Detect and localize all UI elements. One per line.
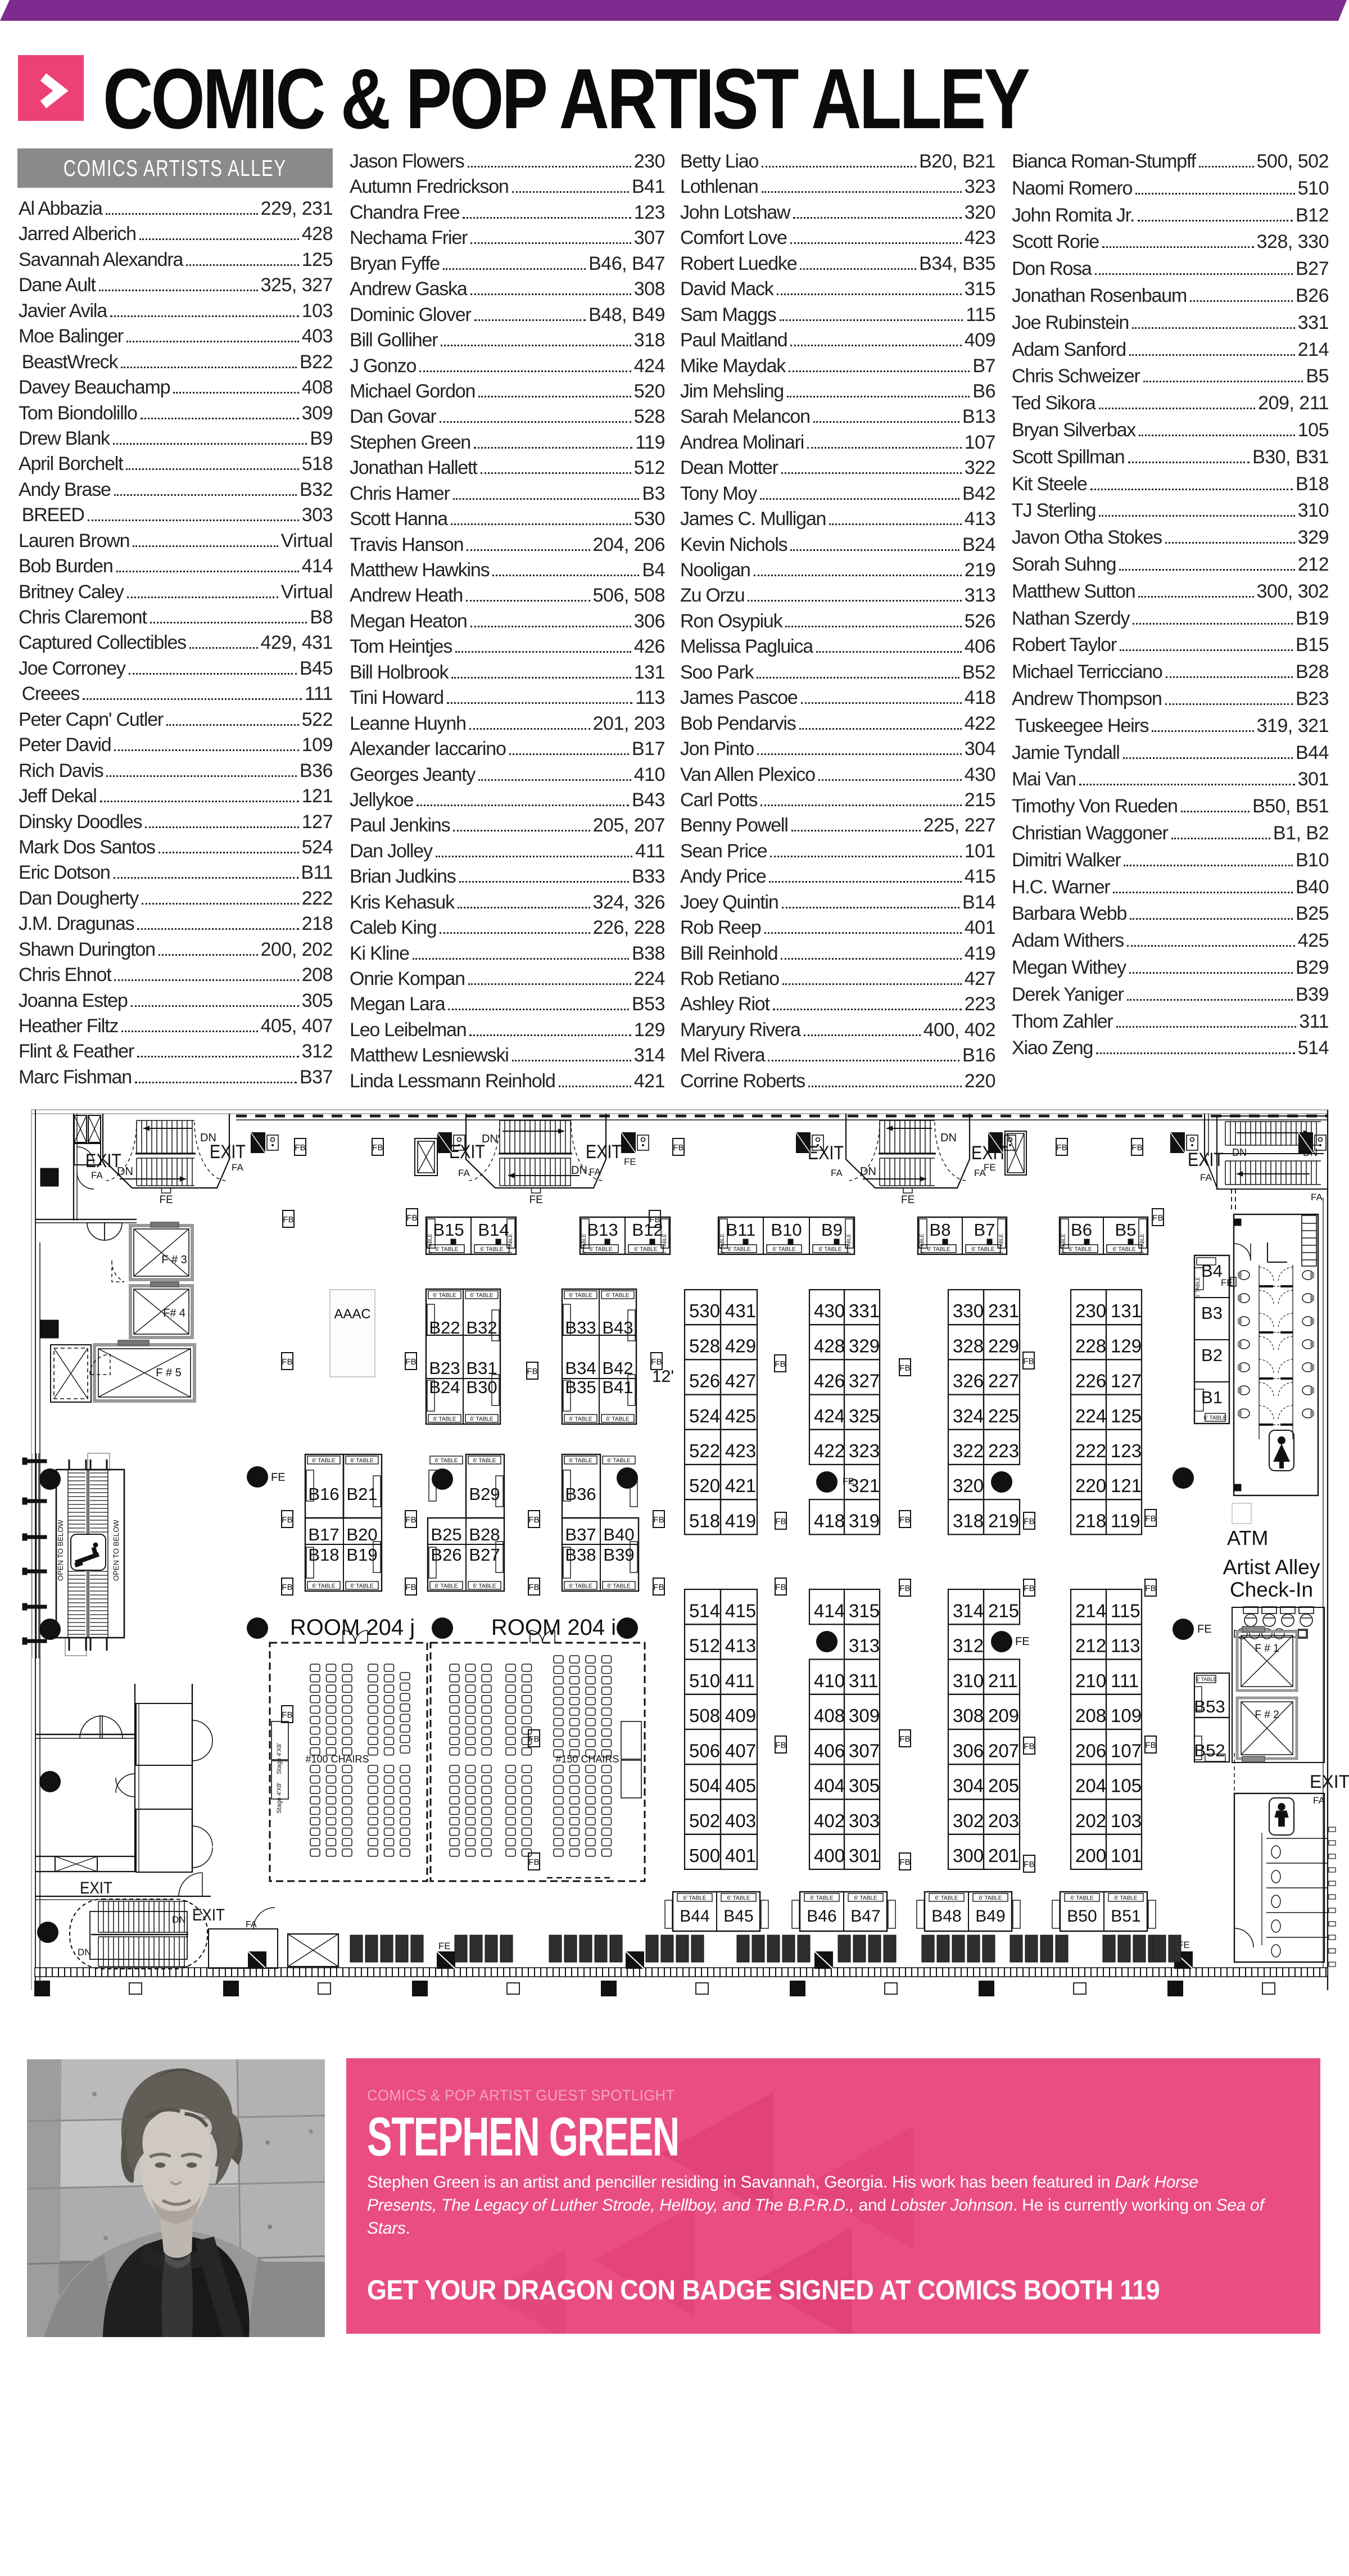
svg-text:202: 202 xyxy=(1075,1810,1106,1831)
svg-text:6' TABLE: 6' TABLE xyxy=(1070,1895,1093,1901)
svg-text:B9: B9 xyxy=(821,1220,843,1240)
svg-text:6' TABLE: 6' TABLE xyxy=(935,1895,958,1901)
svg-text:329: 329 xyxy=(849,1335,880,1356)
svg-text:FB: FB xyxy=(775,1741,786,1750)
svg-text:226: 226 xyxy=(1075,1371,1106,1391)
svg-text:F # 2: F # 2 xyxy=(1255,1709,1279,1721)
svg-text:6' TABLE: 6' TABLE xyxy=(1203,1415,1226,1421)
svg-text:425: 425 xyxy=(725,1405,756,1426)
svg-text:FA: FA xyxy=(91,1170,103,1181)
svg-text:FB: FB xyxy=(528,1734,539,1744)
svg-text:522: 522 xyxy=(689,1440,720,1461)
svg-text:125: 125 xyxy=(1111,1405,1142,1426)
svg-text:408: 408 xyxy=(814,1705,845,1726)
svg-text:6' TABLE: 6' TABLE xyxy=(634,1246,657,1253)
svg-text:B32: B32 xyxy=(466,1318,497,1337)
svg-text:OPEN TO BELOW: OPEN TO BELOW xyxy=(56,1520,65,1581)
svg-text:6' TABLE: 6' TABLE xyxy=(1139,1234,1145,1255)
svg-text:FB: FB xyxy=(283,1215,293,1224)
svg-text:319: 319 xyxy=(849,1510,880,1531)
svg-text:B33: B33 xyxy=(565,1318,596,1337)
svg-text:B47: B47 xyxy=(850,1907,880,1926)
svg-text:B7: B7 xyxy=(974,1220,995,1240)
svg-text:FB: FB xyxy=(899,1858,910,1867)
svg-text:B49: B49 xyxy=(975,1907,1005,1926)
svg-text:119: 119 xyxy=(1111,1510,1140,1531)
svg-text:403: 403 xyxy=(725,1810,756,1831)
svg-text:6' TABLE: 6' TABLE xyxy=(607,1458,630,1464)
svg-text:400: 400 xyxy=(814,1845,845,1866)
svg-text:FA: FA xyxy=(458,1168,470,1178)
svg-text:FB: FB xyxy=(295,1143,305,1153)
svg-text:B23: B23 xyxy=(429,1358,460,1378)
svg-text:B18: B18 xyxy=(308,1545,339,1565)
svg-text:6' TABLE: 6' TABLE xyxy=(1196,1676,1217,1682)
svg-text:212: 212 xyxy=(1075,1635,1106,1656)
svg-text:306: 306 xyxy=(953,1740,984,1761)
svg-text:200: 200 xyxy=(1075,1845,1106,1866)
svg-text:423: 423 xyxy=(725,1440,756,1461)
svg-text:B8: B8 xyxy=(930,1220,951,1240)
svg-text:FB: FB xyxy=(899,1734,910,1744)
svg-text:426: 426 xyxy=(814,1371,845,1391)
svg-text:514: 514 xyxy=(689,1600,720,1621)
svg-text:502: 502 xyxy=(689,1810,720,1831)
svg-text:6' TABLE: 6' TABLE xyxy=(772,1246,795,1253)
svg-text:FA: FA xyxy=(831,1168,843,1178)
svg-text:B10: B10 xyxy=(771,1220,802,1240)
svg-text:429: 429 xyxy=(725,1335,756,1356)
svg-text:520: 520 xyxy=(689,1475,720,1496)
svg-text:FE: FE xyxy=(529,1194,543,1206)
svg-text:320: 320 xyxy=(953,1475,984,1496)
svg-text:B43: B43 xyxy=(602,1318,633,1337)
svg-text:508: 508 xyxy=(689,1705,720,1726)
svg-text:FB: FB xyxy=(528,1583,539,1592)
svg-text:FB: FB xyxy=(673,1143,683,1153)
svg-text:B14: B14 xyxy=(478,1220,509,1240)
svg-text:DN: DN xyxy=(1232,1147,1247,1158)
svg-text:B5: B5 xyxy=(1115,1220,1137,1240)
svg-text:207: 207 xyxy=(988,1740,1019,1761)
svg-text:6' TABLE: 6' TABLE xyxy=(719,1234,725,1255)
svg-text:218: 218 xyxy=(1075,1510,1106,1531)
svg-text:DN: DN xyxy=(78,1947,92,1958)
svg-text:210: 210 xyxy=(1075,1670,1106,1691)
svg-text:208: 208 xyxy=(1075,1705,1106,1726)
svg-text:129: 129 xyxy=(1111,1335,1142,1356)
svg-text:6' TABLE: 6' TABLE xyxy=(433,1416,456,1422)
svg-text:FB: FB xyxy=(899,1363,910,1373)
svg-text:12': 12' xyxy=(652,1367,674,1386)
svg-text:B4: B4 xyxy=(1201,1261,1223,1281)
svg-text:FB: FB xyxy=(653,1583,664,1592)
svg-text:402: 402 xyxy=(814,1810,845,1831)
svg-text:FB: FB xyxy=(1145,1514,1156,1524)
svg-text:DN: DN xyxy=(860,1165,876,1178)
svg-text:6' TABLE: 6' TABLE xyxy=(727,1246,750,1253)
svg-text:331: 331 xyxy=(849,1300,880,1321)
svg-text:312: 312 xyxy=(953,1635,984,1656)
svg-text:FB: FB xyxy=(899,1515,910,1525)
svg-text:#150 CHAIRS: #150 CHAIRS xyxy=(555,1754,619,1765)
svg-text:B42: B42 xyxy=(602,1358,633,1378)
svg-text:FB: FB xyxy=(899,1584,910,1593)
svg-text:FB: FB xyxy=(282,1583,292,1592)
svg-text:6' TABLE: 6' TABLE xyxy=(480,1246,503,1253)
svg-text:6' TABLE: 6' TABLE xyxy=(350,1458,373,1464)
svg-text:FB: FB xyxy=(1023,1357,1034,1366)
svg-text:B45: B45 xyxy=(723,1907,753,1926)
svg-text:6' TABLE: 6' TABLE xyxy=(312,1583,335,1589)
svg-text:330: 330 xyxy=(953,1300,984,1321)
svg-text:FA: FA xyxy=(1200,1172,1212,1183)
svg-text:6' TABLE: 6' TABLE xyxy=(606,1416,629,1422)
svg-text:123: 123 xyxy=(1111,1440,1142,1461)
svg-text:B13: B13 xyxy=(587,1220,618,1240)
svg-text:109: 109 xyxy=(1111,1705,1142,1726)
svg-text:FE: FE xyxy=(160,1194,173,1206)
svg-text:203: 203 xyxy=(988,1810,1019,1831)
svg-text:Check-In: Check-In xyxy=(1230,1578,1313,1601)
svg-text:FB: FB xyxy=(1152,1213,1163,1223)
svg-text:322: 322 xyxy=(953,1440,984,1461)
svg-text:6' TABLE: 6' TABLE xyxy=(927,1246,950,1253)
svg-text:6' TABLE: 6' TABLE xyxy=(979,1895,1002,1901)
svg-text:B25: B25 xyxy=(431,1525,461,1544)
svg-text:205: 205 xyxy=(988,1775,1019,1796)
svg-text:6' TABLE: 6' TABLE xyxy=(434,1458,458,1464)
svg-text:DN: DN xyxy=(940,1132,957,1144)
svg-text:318: 318 xyxy=(953,1510,984,1531)
svg-text:304: 304 xyxy=(953,1775,984,1796)
svg-text:Stage 4'X8': Stage 4'X8' xyxy=(276,1782,283,1814)
svg-text:419: 419 xyxy=(725,1510,756,1531)
svg-text:FB: FB xyxy=(1024,1517,1034,1526)
svg-text:6' TABLE: 6' TABLE xyxy=(1112,1246,1135,1253)
svg-text:FE: FE xyxy=(984,1162,996,1173)
svg-text:107: 107 xyxy=(1111,1740,1142,1761)
svg-text:EXIT: EXIT xyxy=(1310,1771,1349,1792)
svg-text:FB: FB xyxy=(1145,1584,1156,1593)
svg-text:F# 4: F# 4 xyxy=(163,1307,185,1319)
svg-text:229: 229 xyxy=(988,1335,1019,1356)
svg-text:127: 127 xyxy=(1111,1371,1142,1391)
svg-text:209: 209 xyxy=(988,1705,1019,1726)
svg-text:FB: FB xyxy=(775,1583,786,1592)
svg-text:6' TABLE: 6' TABLE xyxy=(1114,1895,1137,1901)
svg-text:6' TABLE: 6' TABLE xyxy=(998,1234,1004,1255)
svg-text:FB: FB xyxy=(1131,1143,1142,1153)
svg-text:309: 309 xyxy=(849,1705,880,1726)
svg-text:6' TABLE: 6' TABLE xyxy=(433,1292,456,1299)
svg-text:512: 512 xyxy=(689,1635,720,1656)
svg-text:528: 528 xyxy=(689,1335,720,1356)
svg-text:6' TABLE: 6' TABLE xyxy=(508,1234,513,1255)
svg-text:FA: FA xyxy=(589,1167,601,1177)
svg-text:6' TABLE: 6' TABLE xyxy=(569,1292,592,1299)
svg-text:326: 326 xyxy=(953,1371,984,1391)
svg-text:B26: B26 xyxy=(431,1545,461,1565)
svg-text:302: 302 xyxy=(953,1810,984,1831)
svg-text:405: 405 xyxy=(725,1775,756,1796)
svg-text:EXIT: EXIT xyxy=(192,1906,225,1924)
svg-text:300: 300 xyxy=(953,1845,984,1866)
svg-text:FB: FB xyxy=(1024,1742,1034,1751)
svg-text:B41: B41 xyxy=(602,1377,633,1397)
svg-text:B3: B3 xyxy=(1201,1303,1223,1323)
svg-text:227: 227 xyxy=(988,1371,1019,1391)
svg-text:310: 310 xyxy=(953,1670,984,1691)
svg-text:6' TABLE: 6' TABLE xyxy=(846,1234,852,1255)
svg-text:F # 5: F # 5 xyxy=(156,1367,182,1379)
svg-text:211: 211 xyxy=(988,1670,1018,1691)
svg-text:418: 418 xyxy=(814,1510,845,1531)
svg-text:6' TABLE: 6' TABLE xyxy=(589,1246,612,1253)
svg-text:314: 314 xyxy=(953,1600,984,1621)
svg-text:6' TABLE: 6' TABLE xyxy=(606,1292,629,1299)
svg-text:FB: FB xyxy=(775,1359,785,1369)
svg-text:B48: B48 xyxy=(931,1907,961,1926)
svg-text:413: 413 xyxy=(725,1635,756,1656)
svg-text:115: 115 xyxy=(1111,1600,1140,1621)
svg-text:ROOM 204 i: ROOM 204 i xyxy=(491,1615,616,1640)
svg-text:409: 409 xyxy=(725,1705,756,1726)
svg-text:FB: FB xyxy=(775,1517,786,1526)
svg-text:231: 231 xyxy=(988,1300,1019,1321)
svg-text:325: 325 xyxy=(849,1405,880,1426)
svg-text:6' TABLE: 6' TABLE xyxy=(919,1234,925,1255)
svg-text:B50: B50 xyxy=(1067,1907,1097,1926)
svg-text:DN: DN xyxy=(172,1914,186,1925)
svg-text:430: 430 xyxy=(814,1300,845,1321)
svg-text:421: 421 xyxy=(725,1475,756,1496)
svg-text:113: 113 xyxy=(1111,1635,1140,1656)
svg-text:ROOM 204 j: ROOM 204 j xyxy=(290,1615,415,1640)
svg-text:B1: B1 xyxy=(1201,1388,1223,1407)
svg-text:FB: FB xyxy=(1024,1860,1034,1869)
svg-text:B52: B52 xyxy=(1194,1741,1225,1760)
svg-text:219: 219 xyxy=(988,1510,1019,1531)
svg-text:214: 214 xyxy=(1075,1600,1106,1621)
svg-text:303: 303 xyxy=(849,1810,880,1831)
svg-text:414: 414 xyxy=(814,1600,845,1621)
svg-text:EXIT: EXIT xyxy=(586,1141,622,1163)
svg-text:6' TABLE: 6' TABLE xyxy=(569,1416,592,1422)
svg-text:328: 328 xyxy=(953,1335,984,1356)
svg-text:6' TABLE: 6' TABLE xyxy=(810,1895,833,1901)
svg-text:B38: B38 xyxy=(565,1545,596,1565)
svg-text:215: 215 xyxy=(988,1600,1019,1621)
svg-text:FB: FB xyxy=(405,1357,416,1367)
svg-text:428: 428 xyxy=(814,1335,845,1356)
svg-text:6' TABLE: 6' TABLE xyxy=(350,1583,373,1589)
svg-text:6' TABLE: 6' TABLE xyxy=(854,1895,877,1901)
svg-text:422: 422 xyxy=(814,1440,845,1461)
svg-text:B44: B44 xyxy=(680,1907,709,1926)
svg-text:FB: FB xyxy=(282,1710,292,1720)
svg-text:311: 311 xyxy=(849,1670,879,1691)
svg-text:Artist Alley: Artist Alley xyxy=(1223,1556,1320,1579)
svg-text:B31: B31 xyxy=(466,1358,497,1378)
svg-text:307: 307 xyxy=(849,1740,880,1761)
svg-text:B2: B2 xyxy=(1201,1345,1223,1365)
svg-text:204: 204 xyxy=(1075,1775,1106,1796)
svg-text:B15: B15 xyxy=(433,1220,464,1240)
svg-text:305: 305 xyxy=(849,1775,880,1796)
svg-text:B46: B46 xyxy=(807,1907,836,1926)
svg-text:B12: B12 xyxy=(632,1220,663,1240)
svg-text:313: 313 xyxy=(849,1635,880,1656)
svg-text:OPEN TO BELOW: OPEN TO BELOW xyxy=(112,1520,120,1581)
svg-text:223: 223 xyxy=(988,1440,1019,1461)
svg-text:FA: FA xyxy=(1311,1192,1323,1203)
svg-text:222: 222 xyxy=(1075,1440,1106,1461)
svg-text:228: 228 xyxy=(1075,1335,1106,1356)
svg-text:230: 230 xyxy=(1075,1300,1106,1321)
svg-text:FB: FB xyxy=(405,1583,416,1592)
svg-text:225: 225 xyxy=(988,1405,1019,1426)
svg-text:B53: B53 xyxy=(1194,1697,1225,1716)
svg-text:FB: FB xyxy=(282,1515,292,1525)
svg-text:F # 1: F # 1 xyxy=(1255,1643,1279,1655)
svg-text:406: 406 xyxy=(814,1740,845,1761)
svg-text:101: 101 xyxy=(1111,1845,1142,1866)
svg-text:B6: B6 xyxy=(1071,1220,1092,1240)
svg-text:FE: FE xyxy=(624,1156,636,1167)
svg-text:530: 530 xyxy=(689,1300,720,1321)
svg-text:301: 301 xyxy=(849,1845,880,1866)
svg-text:FA: FA xyxy=(232,1162,243,1173)
svg-text:FA: FA xyxy=(1313,1795,1325,1806)
svg-text:526: 526 xyxy=(689,1371,720,1391)
svg-text:121: 121 xyxy=(1111,1475,1142,1496)
svg-text:6' TABLE: 6' TABLE xyxy=(971,1246,994,1253)
svg-text:308: 308 xyxy=(953,1705,984,1726)
svg-text:6' TABLE: 6' TABLE xyxy=(1069,1246,1092,1253)
svg-text:6' TABLE: 6' TABLE xyxy=(581,1234,587,1255)
svg-text:AAAC: AAAC xyxy=(334,1307,370,1322)
svg-text:FB: FB xyxy=(1024,1584,1034,1593)
svg-text:504: 504 xyxy=(689,1775,720,1796)
svg-text:6' TABLE: 6' TABLE xyxy=(427,1234,433,1255)
svg-text:518: 518 xyxy=(689,1510,720,1531)
svg-text:EXIT: EXIT xyxy=(808,1142,844,1164)
svg-text:B34: B34 xyxy=(565,1358,596,1378)
svg-text:6' TABLE: 6' TABLE xyxy=(434,1583,458,1589)
svg-text:6' TABLE: 6' TABLE xyxy=(569,1458,592,1464)
svg-text:6' TABLE: 6' TABLE xyxy=(435,1246,458,1253)
svg-text:401: 401 xyxy=(725,1845,756,1866)
svg-text:FE: FE xyxy=(1015,1635,1030,1648)
svg-text:407: 407 xyxy=(725,1740,756,1761)
svg-text:EXIT: EXIT xyxy=(80,1879,112,1897)
svg-text:B51: B51 xyxy=(1111,1907,1140,1926)
svg-text:FB: FB xyxy=(1145,1741,1156,1750)
svg-text:6' TABLE: 6' TABLE xyxy=(470,1292,493,1299)
svg-text:510: 510 xyxy=(689,1670,720,1691)
svg-text:B17: B17 xyxy=(308,1525,339,1544)
svg-text:315: 315 xyxy=(849,1600,880,1621)
svg-text:FB: FB xyxy=(406,1213,417,1223)
svg-text:323: 323 xyxy=(849,1440,880,1461)
svg-text:411: 411 xyxy=(725,1670,755,1691)
svg-text:FE: FE xyxy=(438,1941,451,1951)
svg-text:FB: FB xyxy=(528,1515,539,1525)
svg-text:FE: FE xyxy=(271,1471,286,1484)
svg-text:FB: FB xyxy=(528,1858,539,1867)
svg-text:B11: B11 xyxy=(726,1220,756,1240)
svg-text:6' TABLE: 6' TABLE xyxy=(473,1583,496,1589)
svg-text:6' TABLE: 6' TABLE xyxy=(607,1583,630,1589)
svg-text:FE: FE xyxy=(1197,1623,1212,1635)
svg-text:6' TABLE: 6' TABLE xyxy=(662,1234,667,1255)
svg-text:224: 224 xyxy=(1075,1405,1106,1426)
svg-text:6' TABLE: 6' TABLE xyxy=(473,1458,496,1464)
svg-text:427: 427 xyxy=(725,1371,756,1391)
svg-text:506: 506 xyxy=(689,1740,720,1761)
svg-text:431: 431 xyxy=(725,1300,756,1321)
svg-text:FB: FB xyxy=(653,1515,664,1525)
svg-text:131: 131 xyxy=(1111,1300,1142,1321)
svg-text:6' TABLE: 6' TABLE xyxy=(818,1246,841,1253)
svg-text:B30: B30 xyxy=(466,1377,497,1397)
svg-text:FB: FB xyxy=(282,1357,292,1367)
svg-text:404: 404 xyxy=(814,1775,845,1796)
svg-text:201: 201 xyxy=(988,1845,1019,1866)
svg-text:424: 424 xyxy=(814,1405,845,1426)
svg-text:6' TABLE: 6' TABLE xyxy=(727,1895,750,1901)
svg-text:500: 500 xyxy=(689,1845,720,1866)
svg-text:220: 220 xyxy=(1075,1475,1106,1496)
svg-text:524: 524 xyxy=(689,1405,720,1426)
svg-text:415: 415 xyxy=(725,1600,756,1621)
svg-text:FB: FB xyxy=(651,1357,662,1367)
svg-text:F # 3: F # 3 xyxy=(161,1254,187,1266)
svg-text:Stage 4'X8': Stage 4'X8' xyxy=(276,1743,283,1774)
svg-text:EXIT: EXIT xyxy=(449,1141,485,1163)
svg-text:ATM: ATM xyxy=(1227,1526,1268,1549)
svg-text:410: 410 xyxy=(814,1670,845,1691)
svg-text:FE: FE xyxy=(901,1194,915,1206)
svg-text:6' TABLE: 6' TABLE xyxy=(683,1895,706,1901)
svg-text:105: 105 xyxy=(1111,1775,1142,1796)
svg-text:6' TABLE: 6' TABLE xyxy=(470,1416,493,1422)
svg-text:6' TABLE: 6' TABLE xyxy=(1061,1234,1066,1255)
svg-text:324: 324 xyxy=(953,1405,984,1426)
svg-text:#100 CHAIRS: #100 CHAIRS xyxy=(305,1754,369,1765)
svg-text:B22: B22 xyxy=(429,1318,460,1337)
svg-text:FB: FB xyxy=(1056,1143,1067,1153)
svg-text:103: 103 xyxy=(1111,1810,1142,1831)
svg-text:206: 206 xyxy=(1075,1740,1106,1761)
svg-text:FB: FB xyxy=(405,1515,416,1525)
svg-text:EXIT: EXIT xyxy=(210,1141,246,1163)
svg-text:FE: FE xyxy=(843,1477,854,1486)
svg-text:327: 327 xyxy=(849,1371,880,1391)
svg-text:FB: FB xyxy=(372,1143,383,1153)
svg-text:FB: FB xyxy=(527,1367,537,1376)
svg-text:6' TABLE: 6' TABLE xyxy=(1195,1277,1201,1298)
svg-text:111: 111 xyxy=(1111,1670,1139,1691)
svg-text:6' TABLE: 6' TABLE xyxy=(312,1458,335,1464)
svg-text:6' TABLE: 6' TABLE xyxy=(569,1583,592,1589)
svg-text:B37: B37 xyxy=(565,1525,596,1544)
